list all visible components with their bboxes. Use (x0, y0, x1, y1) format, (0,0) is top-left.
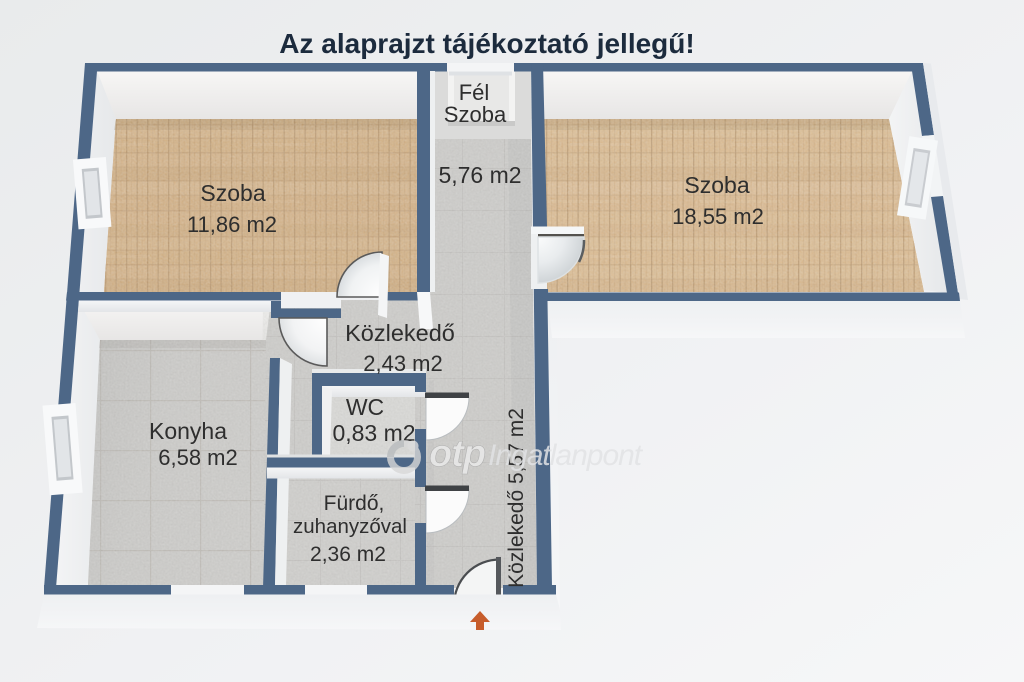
svg-text:otp: otp (429, 433, 485, 475)
svg-text:Szoba: Szoba (684, 172, 749, 198)
svg-text:Az alaprajzt tájékoztató jelle: Az alaprajzt tájékoztató jellegű! (279, 28, 694, 59)
svg-text:Konyha: Konyha (149, 418, 227, 444)
svg-text:5,76 m2: 5,76 m2 (438, 162, 521, 188)
svg-text:Közlekedő: Közlekedő (345, 320, 455, 346)
svg-text:6,58 m2: 6,58 m2 (158, 445, 238, 470)
svg-text:Szoba: Szoba (444, 102, 507, 127)
svg-text:WC: WC (346, 394, 384, 420)
svg-text:11,86 m2: 11,86 m2 (187, 212, 277, 237)
svg-text:2,43 m2: 2,43 m2 (363, 351, 443, 376)
svg-text:Fürdő,: Fürdő, (324, 492, 385, 515)
svg-text:Ingatlanpont: Ingatlanpont (488, 439, 644, 472)
svg-text:2,36 m2: 2,36 m2 (310, 543, 386, 566)
svg-text:Közlekedő 5,57 m2: Közlekedő 5,57 m2 (505, 408, 528, 588)
svg-text:zuhanyzőval: zuhanyzőval (293, 515, 407, 538)
svg-text:18,55 m2: 18,55 m2 (672, 204, 764, 229)
svg-text:Szoba: Szoba (200, 180, 265, 206)
